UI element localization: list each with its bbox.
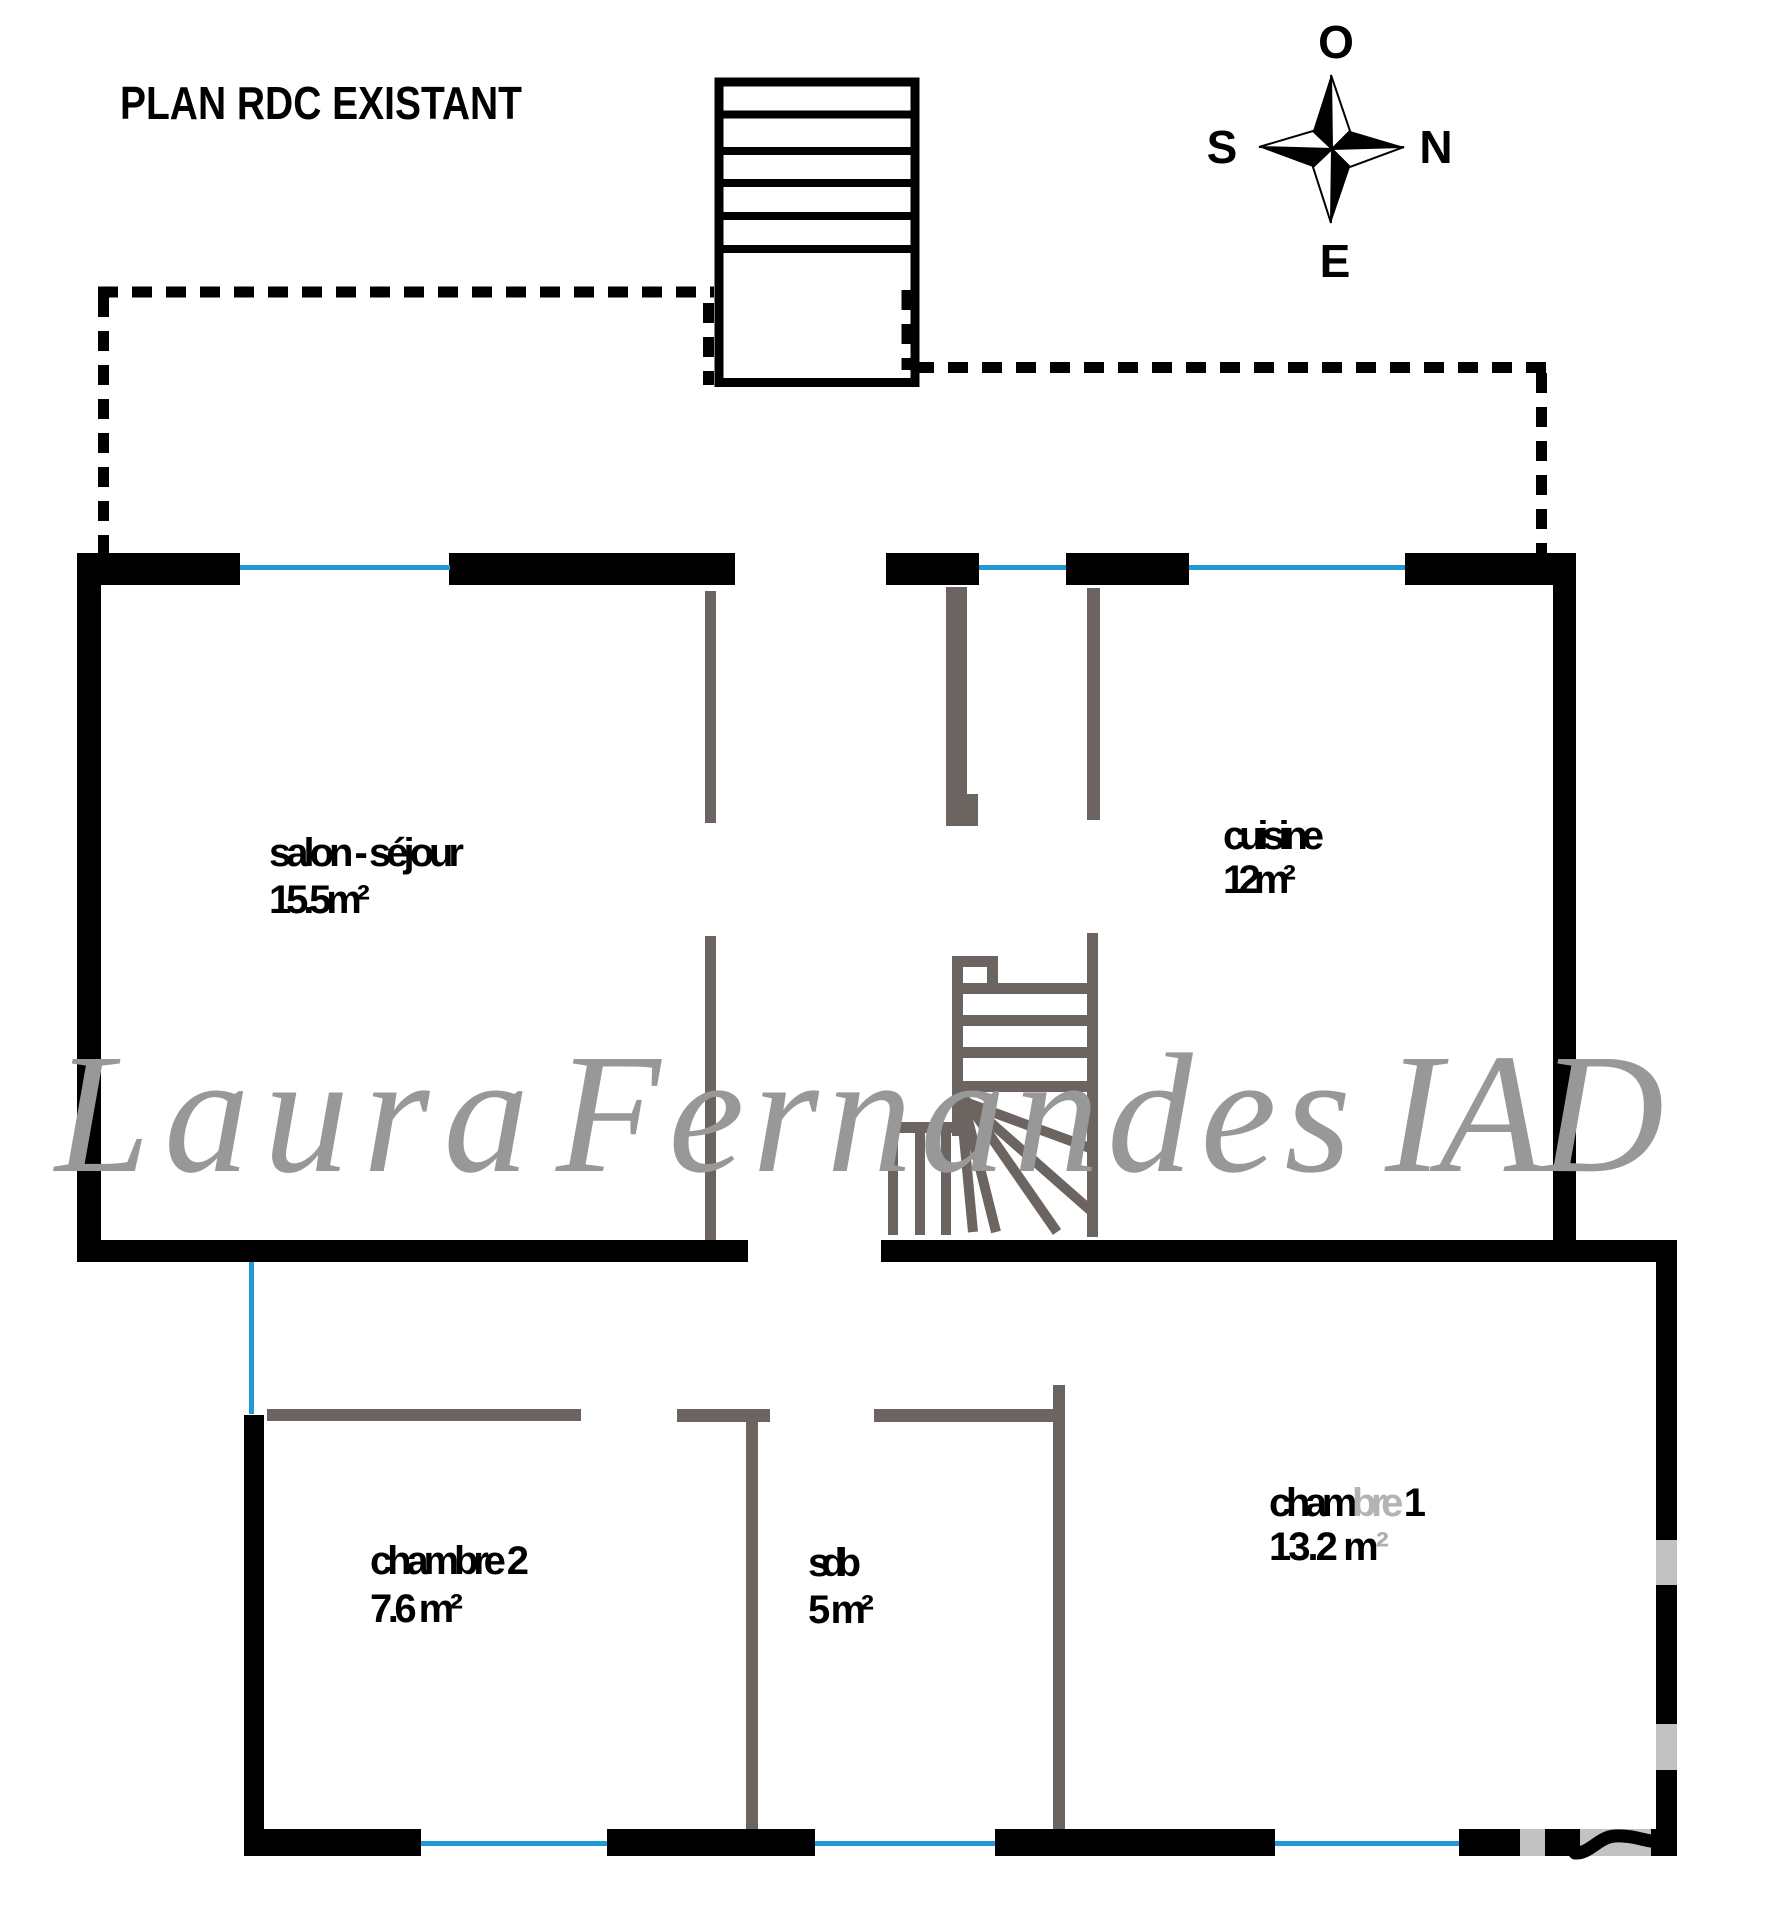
svg-text:sdb: sdb xyxy=(808,1541,861,1585)
svg-text:13.2 m²: 13.2 m² xyxy=(1269,1525,1389,1569)
svg-text:Laura: Laura xyxy=(53,1019,529,1208)
svg-text:Fernandes: Fernandes xyxy=(555,1019,1351,1208)
svg-text:12m²: 12m² xyxy=(1223,858,1296,902)
svg-text:PLAN RDC EXISTANT: PLAN RDC EXISTANT xyxy=(120,77,522,129)
svg-text:7.6 m²: 7.6 m² xyxy=(370,1587,463,1631)
svg-text:5 m²: 5 m² xyxy=(808,1588,874,1632)
svg-text:15.5m²: 15.5m² xyxy=(269,878,370,922)
svg-text:IAD: IAD xyxy=(1384,1019,1664,1208)
svg-text:cuisine: cuisine xyxy=(1223,814,1324,858)
svg-text:O: O xyxy=(1318,16,1354,68)
svg-text:chambre 1: chambre 1 xyxy=(1269,1481,1426,1525)
svg-text:S: S xyxy=(1207,121,1238,173)
svg-text:chambre 2: chambre 2 xyxy=(370,1539,529,1583)
svg-text:E: E xyxy=(1320,235,1351,287)
svg-text:salon - séjour: salon - séjour xyxy=(269,831,464,875)
svg-text:N: N xyxy=(1419,121,1452,173)
